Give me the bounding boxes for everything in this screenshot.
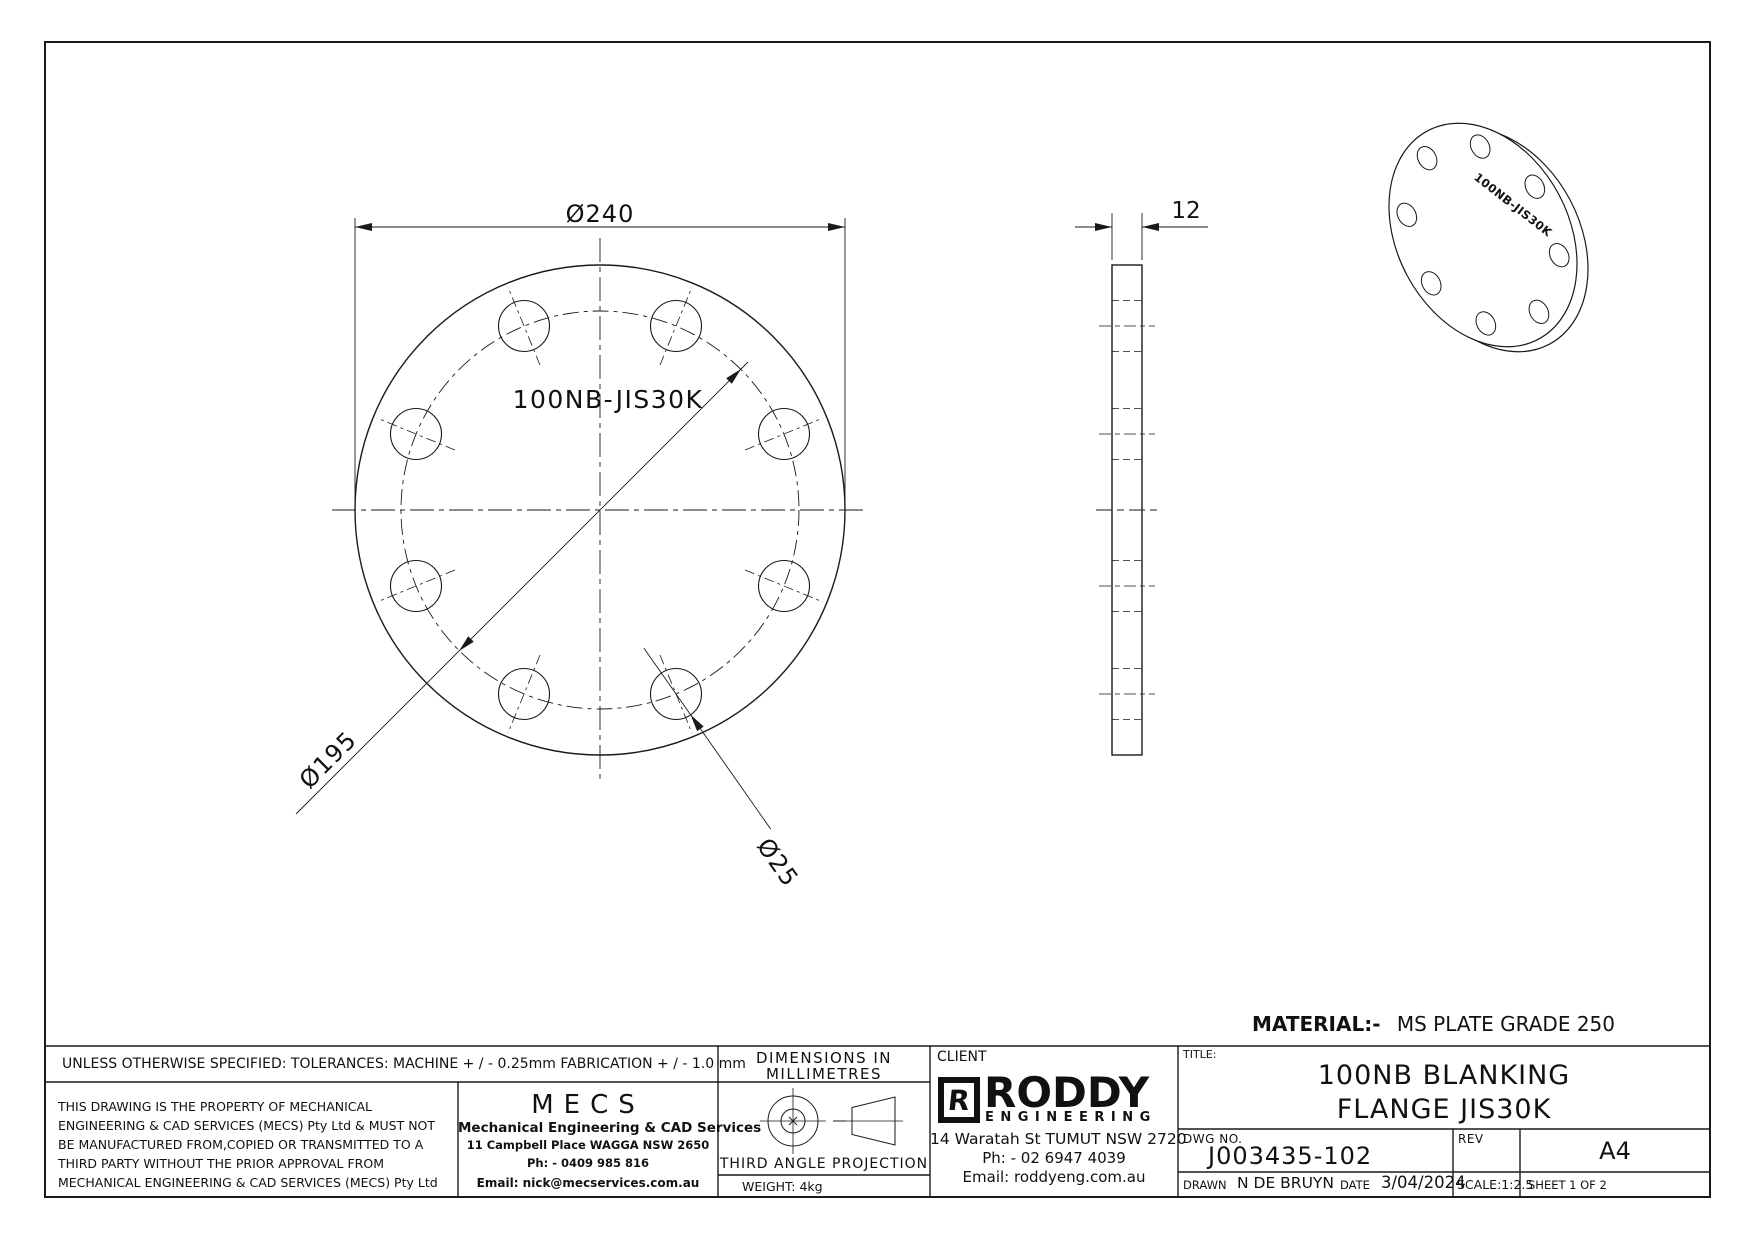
drawing-sheet: Ø240 100NB-JIS30K Ø195 Ø25 12 100NB-JIS3… — [0, 0, 1753, 1240]
rev-label: REV — [1458, 1132, 1484, 1146]
dim-240-label: Ø240 — [530, 200, 670, 228]
property-note-line: THIS DRAWING IS THE PROPERTY OF MECHANIC… — [58, 1097, 372, 1116]
front-view — [296, 218, 868, 829]
property-note-line: THIRD PARTY WITHOUT THE PRIOR APPROVAL F… — [58, 1154, 384, 1173]
sheet-size: A4 — [1520, 1137, 1710, 1165]
arrowhead — [1095, 223, 1112, 231]
client-email: Email: roddyeng.com.au — [930, 1168, 1178, 1186]
material-label: MATERIAL:- — [1252, 1012, 1381, 1036]
dim-25-leader — [644, 648, 771, 829]
dim-195 — [296, 362, 748, 814]
mecs-phone: Ph: - 0409 985 816 — [458, 1156, 718, 1170]
dwg-no-value: J003435-102 — [1208, 1142, 1372, 1170]
drawn-label: DRAWN — [1183, 1178, 1227, 1192]
material-value: MS PLATE GRADE 250 — [1397, 1012, 1615, 1036]
mecs-address: 11 Campbell Place WAGGA NSW 2650 — [458, 1138, 718, 1152]
mecs-logo: MECS — [458, 1090, 718, 1120]
units-line2: MILLIMETRES — [718, 1065, 930, 1083]
scale-label: SCALE:1:2.5 — [1457, 1177, 1533, 1192]
client-phone: Ph: - 02 6947 4039 — [930, 1149, 1178, 1167]
property-note-line: MECHANICAL ENGINEERING & CAD SERVICES (M… — [58, 1173, 438, 1192]
mecs-name: Mechanical Engineering & CAD Services — [458, 1120, 718, 1136]
property-note-line: ENGINEERING & CAD SERVICES (MECS) Pty Lt… — [58, 1116, 435, 1135]
arrowhead — [691, 715, 704, 731]
isometric-view — [1352, 90, 1626, 384]
drawing-title-line2: FLANGE JIS30K — [1178, 1094, 1710, 1125]
drawn-value: N DE BRUYN — [1237, 1174, 1334, 1192]
roddy-logo-mark: R — [938, 1077, 980, 1123]
date-label: DATE — [1340, 1178, 1370, 1192]
side-view — [1075, 213, 1208, 755]
weight-label: WEIGHT: 4kg — [742, 1179, 823, 1194]
projection-label: THIRD ANGLE PROJECTION — [718, 1156, 930, 1172]
property-note-line: BE MANUFACTURED FROM,COPIED OR TRANSMITT… — [58, 1135, 423, 1154]
client-label: CLIENT — [937, 1049, 987, 1065]
drawing-title-line1: 100NB BLANKING — [1178, 1060, 1710, 1091]
tolerances-note: UNLESS OTHERWISE SPECIFIED: TOLERANCES: … — [62, 1056, 746, 1072]
mecs-email: Email: nick@mecservices.com.au — [458, 1176, 718, 1190]
front-view-label: 100NB-JIS30K — [458, 385, 758, 414]
dim-12-label: 12 — [1146, 198, 1226, 224]
client-address: 14 Waratah St TUMUT NSW 2720 — [930, 1130, 1178, 1148]
roddy-logo-r: R — [946, 1084, 971, 1117]
arrowhead — [1142, 223, 1159, 231]
arrowhead — [828, 223, 845, 231]
projection-symbol — [760, 1088, 903, 1154]
sheet-label: SHEET 1 OF 2 — [1528, 1178, 1607, 1192]
arrowhead — [355, 223, 372, 231]
date-value: 3/04/2024 — [1381, 1173, 1466, 1192]
material-note: MATERIAL:- MS PLATE GRADE 250 — [1252, 1012, 1615, 1036]
roddy-logo-sub: ENGINEERING — [985, 1110, 1157, 1125]
